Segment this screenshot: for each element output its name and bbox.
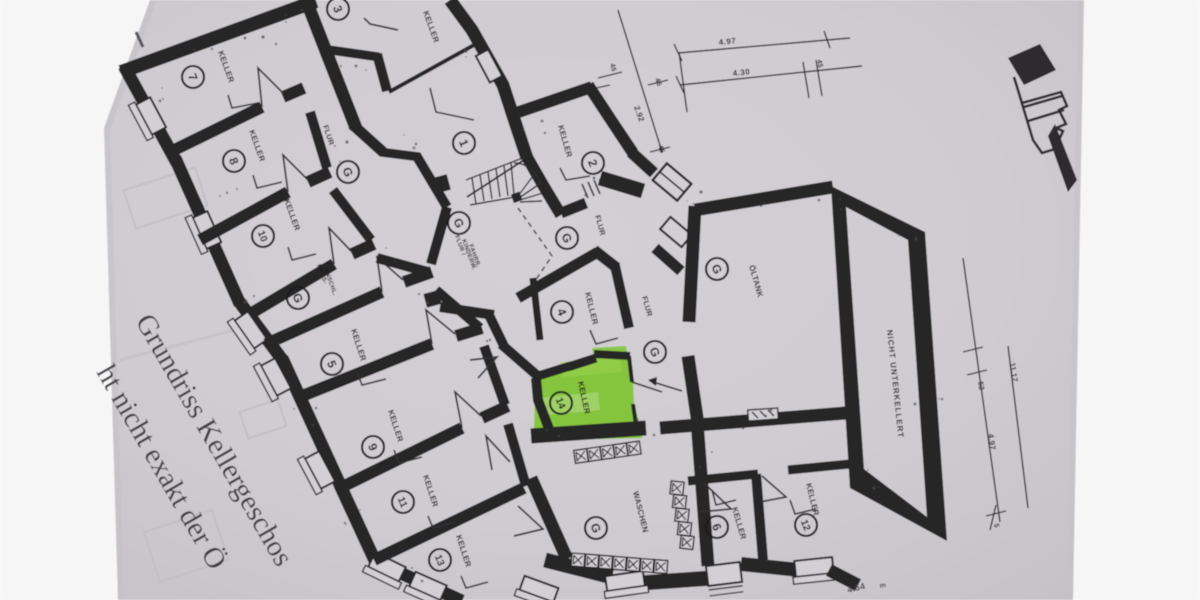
svg-text:m: m [879, 582, 887, 590]
svg-text:4.30: 4.30 [732, 67, 750, 78]
svg-text:4.97: 4.97 [718, 36, 736, 47]
svg-text:45: 45 [815, 59, 823, 68]
svg-text:52: 52 [976, 381, 986, 391]
